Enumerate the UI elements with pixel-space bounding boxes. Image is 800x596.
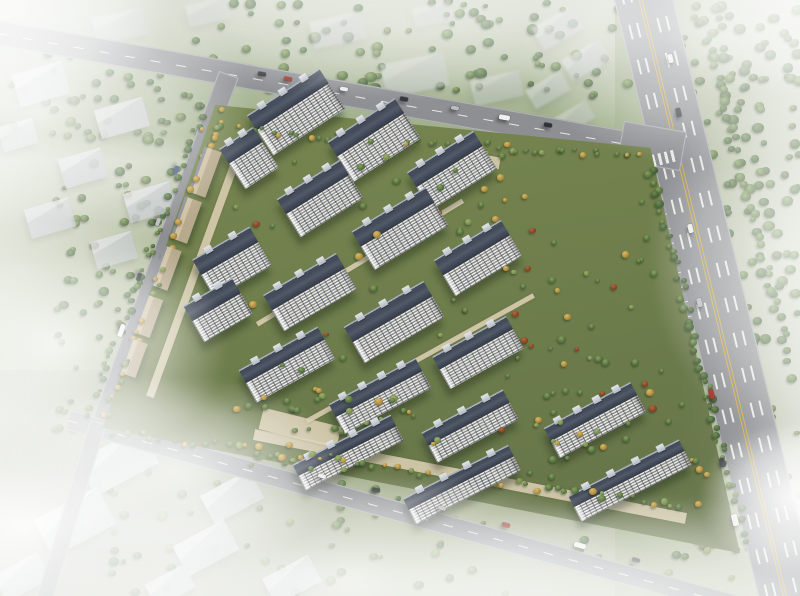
fog-patch [140, 0, 700, 98]
fog-patch [0, 220, 225, 470]
fog-patch [520, 0, 800, 165]
fog-patch [650, 0, 800, 100]
fog-patch [0, 355, 305, 596]
aerial-render-scene [0, 0, 800, 596]
fog-patch [0, 0, 250, 260]
fog-patch [5, 377, 345, 567]
fog-patch [701, 423, 800, 573]
fog-patch [390, 497, 800, 596]
fog-patch [50, 472, 650, 596]
fog-patch [0, 0, 170, 125]
fog-layer [0, 0, 800, 596]
fog-patch [650, 85, 800, 425]
